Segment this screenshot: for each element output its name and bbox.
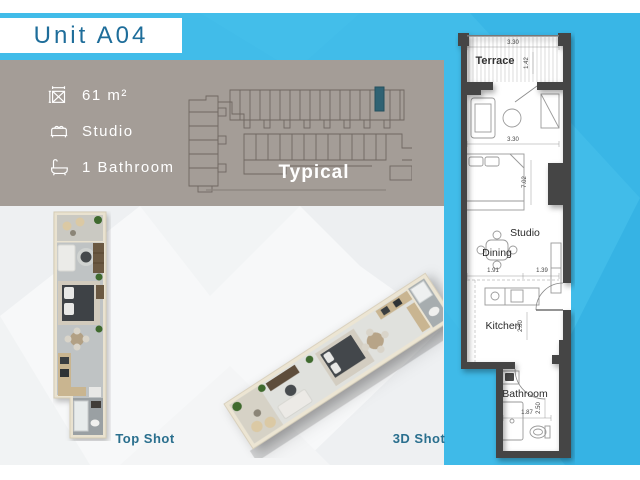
unit-info-panel: 61 m² Studio (0, 60, 444, 206)
page-title: Unit A04 (34, 22, 149, 50)
bath-icon (48, 156, 70, 178)
floor-plan: Terrace 3.30 1.42 3.30 7.02 Studio Dinin… (455, 30, 575, 465)
terrace-depth-dim: 1.42 (524, 57, 530, 69)
unit-title-box: Unit A04 (0, 18, 182, 53)
unit-specs-list: 61 m² Studio (48, 82, 175, 190)
brochure-page: Unit A04 61 m² (0, 0, 640, 480)
three-d-shot-render (198, 208, 443, 458)
dining-right-dim: 1.39 (536, 268, 548, 274)
studio-label: Studio (510, 227, 540, 239)
terrace-label: Terrace (476, 55, 515, 67)
bathroom-width-dim: 1.87 (521, 410, 533, 416)
building-footprint-diagram: Typical (186, 86, 412, 198)
bed-icon (48, 120, 70, 142)
unit-bathrooms-row: 1 Bathroom (48, 154, 175, 180)
kitchen-label: Kitchen (485, 320, 520, 332)
highlighted-unit-marker (375, 87, 384, 111)
dining-left-dim: 1.91 (487, 268, 499, 274)
dining-label: Dining (482, 247, 512, 259)
unit-type-value: Studio (82, 123, 134, 140)
renders-area (0, 206, 444, 465)
unit-type-row: Studio (48, 118, 175, 144)
area-icon (48, 84, 70, 106)
top-shot-render (53, 211, 111, 441)
unit-bathrooms-value: 1 Bathroom (82, 159, 175, 176)
terrace-width-dim: 3.30 (507, 40, 519, 46)
studio-length-dim: 7.02 (522, 176, 528, 188)
top-shot-label: Top Shot (90, 431, 200, 446)
kitchen-depth-dim: 2.80 (518, 320, 524, 332)
unit-area-row: 61 m² (48, 82, 175, 108)
studio-width-dim: 3.30 (507, 137, 519, 143)
bathroom-label: Bathroom (502, 388, 548, 400)
footprint-label: Typical (278, 162, 349, 183)
unit-area-value: 61 m² (82, 87, 128, 104)
bathroom-depth-dim: 2.50 (536, 402, 542, 414)
